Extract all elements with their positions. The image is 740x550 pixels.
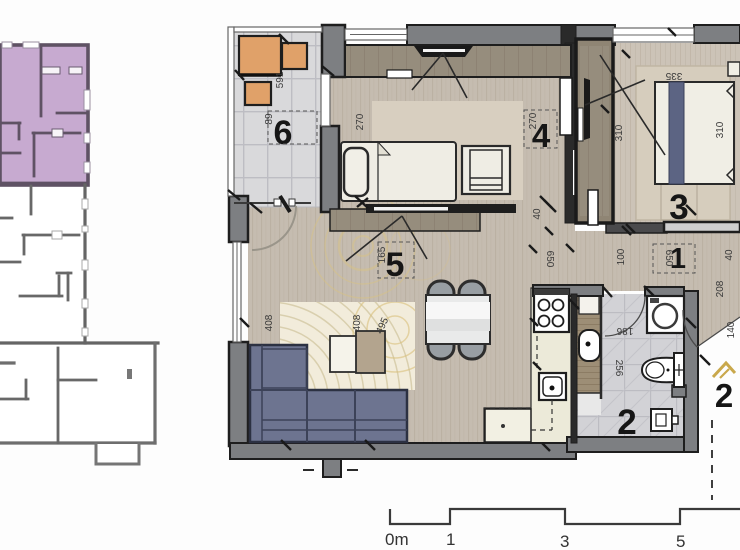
svg-text:650: 650 (663, 250, 674, 267)
svg-text:256: 256 (613, 360, 624, 377)
svg-text:6: 6 (274, 114, 293, 152)
svg-text:40: 40 (532, 208, 543, 220)
svg-text:2: 2 (617, 403, 636, 442)
svg-text:3: 3 (669, 188, 688, 227)
svg-text:0m: 0m (385, 530, 409, 549)
svg-text:140: 140 (726, 321, 737, 338)
svg-text:310: 310 (715, 121, 726, 138)
svg-text:165: 165 (377, 246, 388, 263)
svg-text:591: 591 (275, 71, 286, 88)
svg-text:208: 208 (715, 280, 726, 297)
svg-text:89: 89 (264, 113, 275, 125)
svg-text:3: 3 (560, 532, 569, 550)
svg-text:5: 5 (676, 532, 685, 550)
svg-text:270: 270 (528, 112, 539, 129)
svg-text:408: 408 (264, 314, 275, 331)
svg-text:40: 40 (724, 249, 735, 261)
svg-text:100: 100 (616, 248, 627, 265)
svg-text:1: 1 (446, 530, 455, 549)
svg-text:310: 310 (614, 124, 625, 141)
svg-text:2: 2 (715, 377, 733, 414)
svg-text:650: 650 (544, 251, 555, 268)
svg-text:270: 270 (355, 113, 366, 130)
svg-text:186: 186 (616, 325, 633, 336)
svg-text:408: 408 (352, 314, 363, 331)
svg-text:335: 335 (665, 70, 682, 81)
